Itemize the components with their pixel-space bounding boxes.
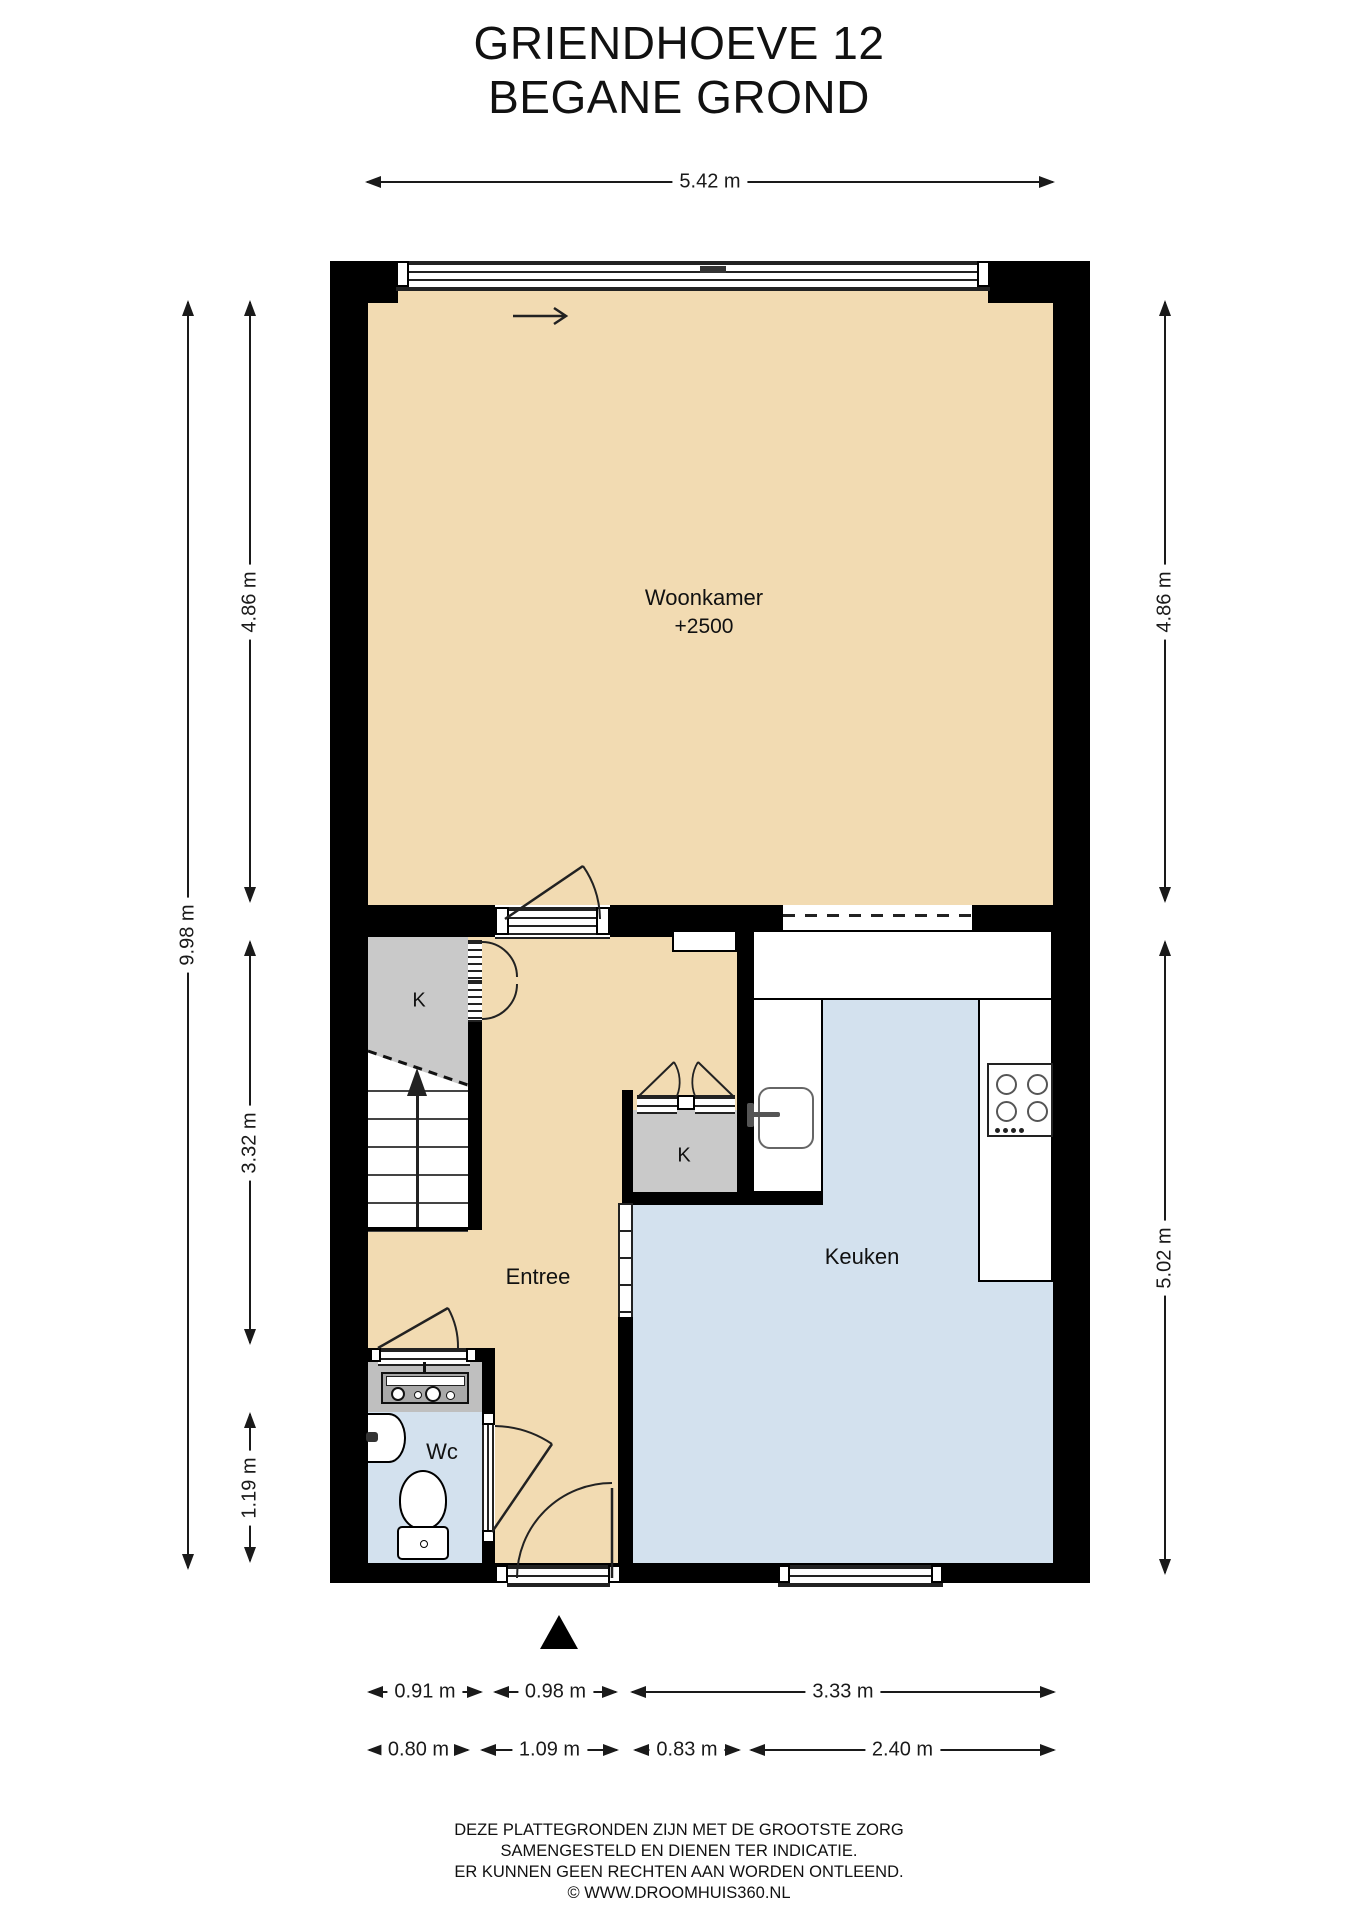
dim-bottom-row2-seg1: 0.80 m <box>367 1741 470 1759</box>
dim-bottom-row1-seg3: 3.33 m <box>630 1683 1056 1701</box>
dim-bottom-row2-seg4: 2.40 m <box>749 1741 1056 1759</box>
title-line-floor: BEGANE GROND <box>0 70 1358 124</box>
closet-hall-door-right <box>695 1095 735 1114</box>
kitchen-passthrough-band <box>783 905 972 930</box>
entree-wall-niche <box>672 930 737 952</box>
electric-meter-icon <box>425 1386 441 1402</box>
window-top-post-left <box>396 261 409 287</box>
utility-meters-panel <box>381 1372 469 1404</box>
disclaimer-copyright: © WWW.DROOMHUIS360.NL <box>0 1883 1358 1904</box>
stove-knob-icon <box>995 1128 1000 1133</box>
burner-icon <box>1027 1101 1048 1122</box>
wall-closet-hall-bottom <box>622 1192 823 1205</box>
room-label-wc: Wc <box>426 1439 458 1465</box>
door-post <box>482 1412 495 1425</box>
room-label-woonkamer: Woonkamer <box>645 585 763 611</box>
window-post <box>778 1565 790 1583</box>
window-top-post-right <box>977 261 990 287</box>
washbasin-tap-icon <box>366 1432 378 1442</box>
door-wc <box>482 1424 495 1532</box>
room-label-closet-hall: K <box>677 1145 690 1168</box>
window-post <box>931 1565 943 1583</box>
stairs-bottom-edge <box>368 1227 468 1231</box>
door-post <box>677 1095 695 1110</box>
meter-dot-icon <box>414 1391 422 1399</box>
meter-shelf <box>386 1376 465 1386</box>
room-label-woonkamer-height: +2500 <box>675 615 734 639</box>
stair-direction-arrow-icon <box>407 1068 427 1096</box>
wall-closet-stairs-right <box>468 1018 482 1230</box>
title-line-address: GRIENDHOEVE 12 <box>0 16 1358 70</box>
disclaimer-line: DEZE PLATTEGRONDEN ZIJN MET DE GROOTSTE … <box>0 1820 1358 1841</box>
room-label-entree: Entree <box>506 1264 571 1290</box>
door-post <box>596 907 610 935</box>
closet-hall-door-left <box>637 1095 677 1114</box>
dim-left-middle: 3.32 m <box>241 940 259 1345</box>
dim-left-lower: 1.19 m <box>241 1412 259 1563</box>
wall-closet-hall-left-stub <box>622 1090 633 1203</box>
sink-faucet-spout <box>752 1112 780 1117</box>
dim-bottom-row1-seg1: 0.91 m <box>367 1683 483 1701</box>
meter-pipe <box>423 1362 426 1374</box>
window-top-living <box>396 261 990 291</box>
floorplan-page: GRIENDHOEVE 12 BEGANE GROND <box>0 0 1358 1920</box>
window-kitchen-bottom <box>778 1565 943 1587</box>
door-post <box>482 1530 495 1543</box>
stair-arrow-shaft <box>416 1094 419 1228</box>
stove-knob-icon <box>1003 1128 1008 1133</box>
water-meter-icon <box>391 1387 405 1401</box>
entrance-marker-icon <box>540 1615 578 1649</box>
room-label-keuken: Keuken <box>825 1244 900 1270</box>
dim-right-lower: 5.02 m <box>1156 940 1174 1575</box>
door-post <box>608 1565 621 1583</box>
front-door-threshold <box>507 1565 610 1587</box>
kitchen-passthrough-dashed-line <box>783 914 972 917</box>
burner-icon <box>1027 1074 1048 1095</box>
window-entree-kitchen <box>618 1203 633 1317</box>
door-post <box>495 907 509 935</box>
stove-knob-icon <box>1019 1128 1024 1133</box>
toilet-button-icon <box>420 1540 428 1548</box>
dim-left-total: 9.98 m <box>179 300 197 1570</box>
dim-bottom-row1-seg2: 0.98 m <box>493 1683 618 1701</box>
wall-woonkamer-south-left <box>330 905 495 937</box>
burner-icon <box>996 1101 1017 1122</box>
keuken-floor-lower-left <box>633 1205 752 1563</box>
kitchen-counter-top <box>752 930 1053 1000</box>
wall-top-left-pier <box>330 261 398 303</box>
dim-right-upper: 4.86 m <box>1156 300 1174 903</box>
window-top-handle <box>700 266 726 273</box>
door-post <box>370 1348 381 1362</box>
closet-stairs-door-lower <box>468 980 482 1022</box>
disclaimer-line: SAMENGESTELD EN DIENEN TER INDICATIE. <box>0 1841 1358 1862</box>
kitchen-counter-right <box>978 998 1053 1282</box>
wall-top-right-pier <box>988 261 1090 303</box>
closet-stairs-door-upper <box>468 940 482 982</box>
page-title: GRIENDHOEVE 12 BEGANE GROND <box>0 16 1358 125</box>
room-label-closet-stairs: K <box>412 990 425 1013</box>
stove-knob-icon <box>1011 1128 1016 1133</box>
meter-dot-icon <box>446 1391 455 1400</box>
wall-entree-kitchen-lower <box>618 1317 633 1563</box>
wall-right <box>1053 261 1090 1583</box>
dim-bottom-row2-seg2: 1.09 m <box>480 1741 619 1759</box>
disclaimer: DEZE PLATTEGRONDEN ZIJN MET DE GROOTSTE … <box>0 1820 1358 1904</box>
toilet-bowl-icon <box>399 1470 447 1530</box>
sink-icon <box>758 1087 814 1149</box>
door-threshold-woonkamer <box>495 907 610 939</box>
door-post <box>466 1348 477 1362</box>
dim-left-upper: 4.86 m <box>241 300 259 903</box>
wall-bottom <box>330 1563 1090 1583</box>
burner-icon <box>996 1074 1017 1095</box>
dim-bottom-row2-seg3: 0.83 m <box>633 1741 741 1759</box>
door-post <box>495 1565 508 1583</box>
disclaimer-line: ER KUNNEN GEEN RECHTEN AAN WORDEN ONTLEE… <box>0 1862 1358 1883</box>
wall-entree-kitchen-divider <box>737 918 752 1193</box>
dim-top-width: 5.42 m <box>365 173 1055 191</box>
stove-icon <box>987 1063 1053 1137</box>
